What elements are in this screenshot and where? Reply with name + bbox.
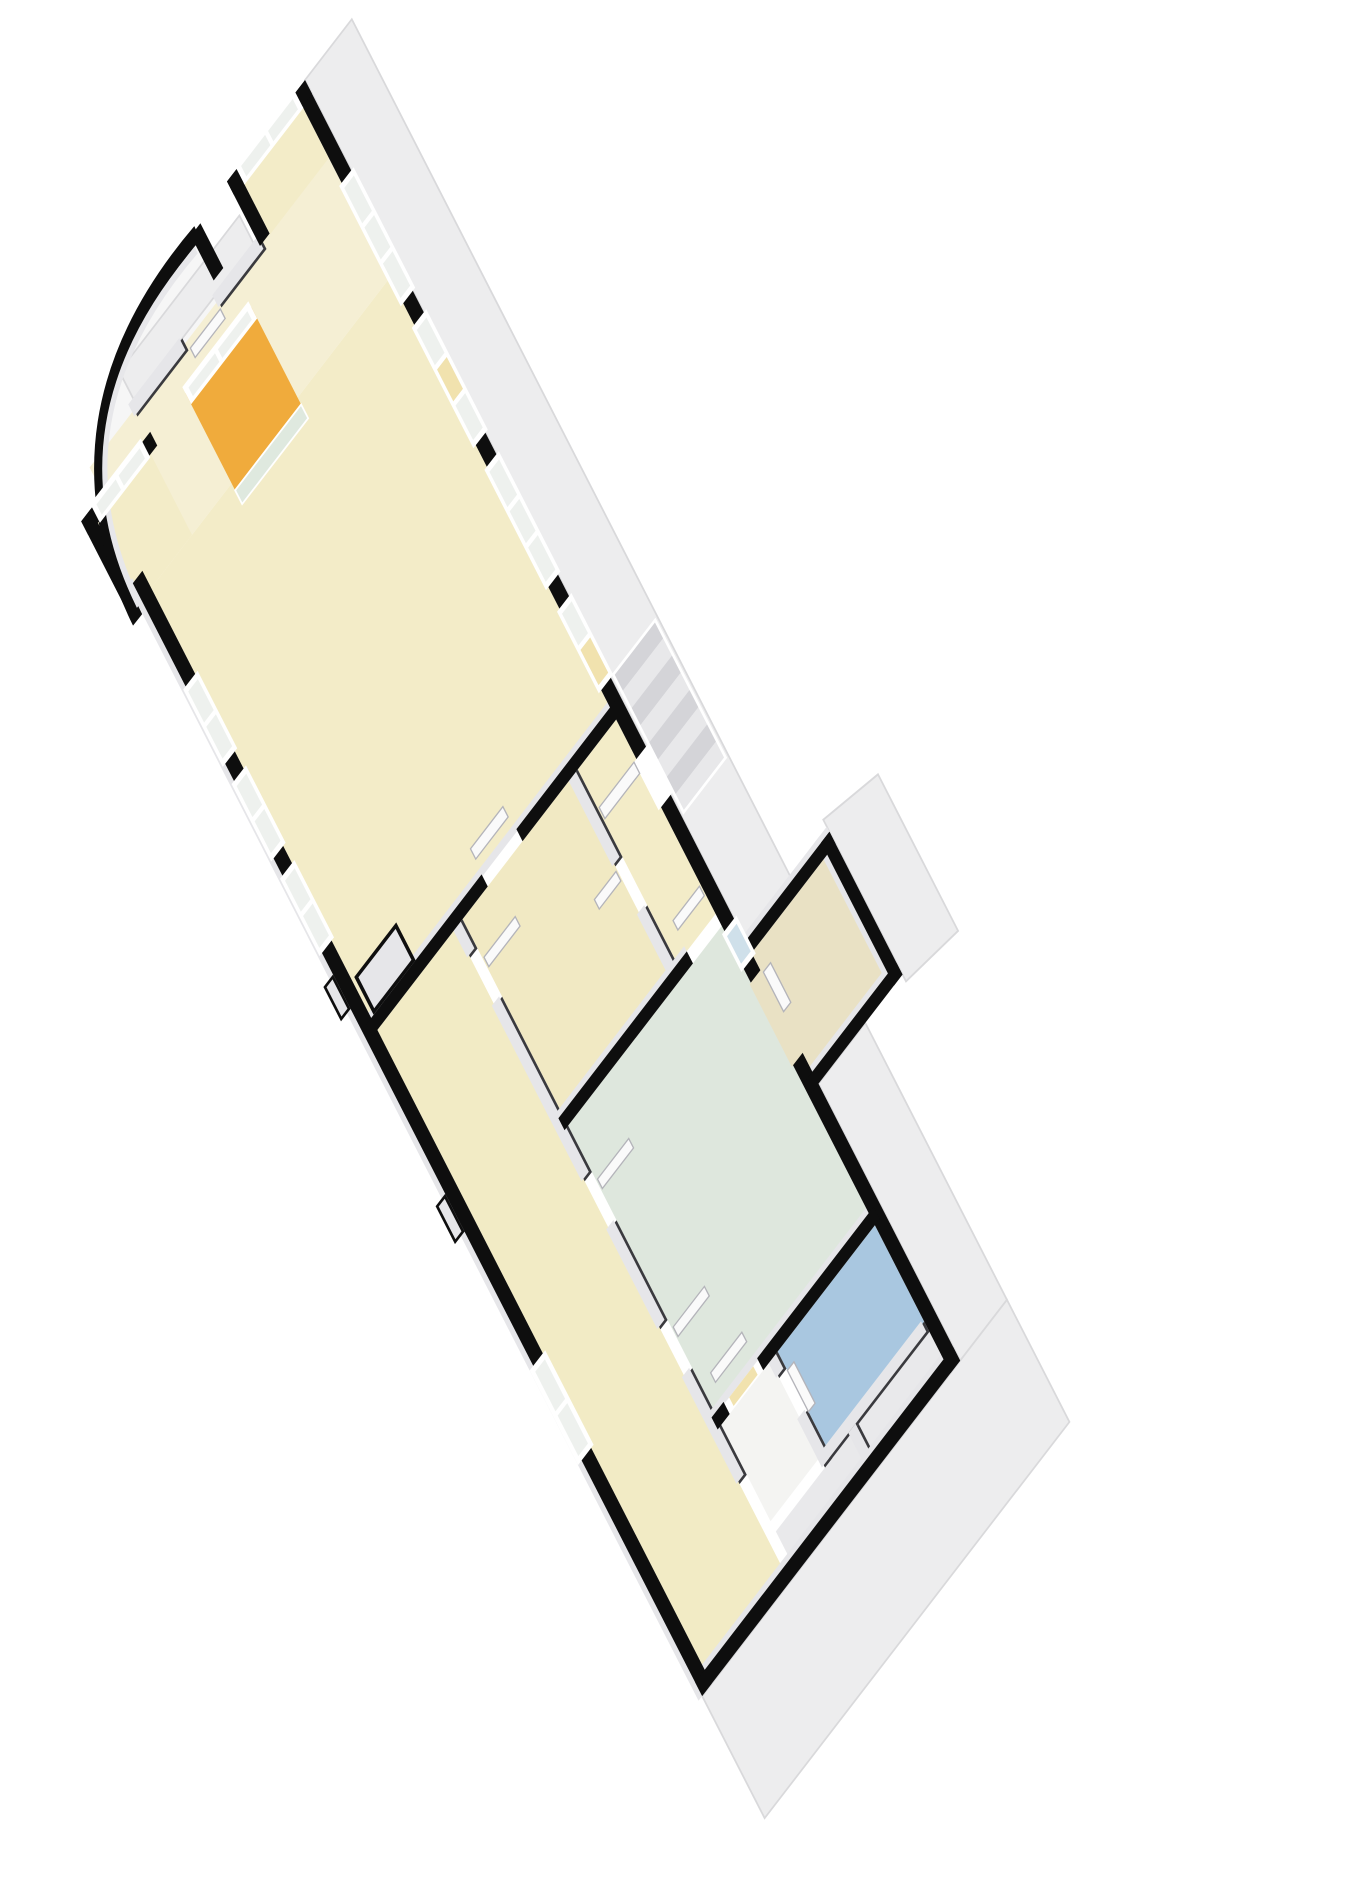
floorplan-3d-view xyxy=(33,0,1153,1834)
floorplan-canvas xyxy=(0,0,1345,1900)
floorplan-page xyxy=(0,0,1345,1900)
